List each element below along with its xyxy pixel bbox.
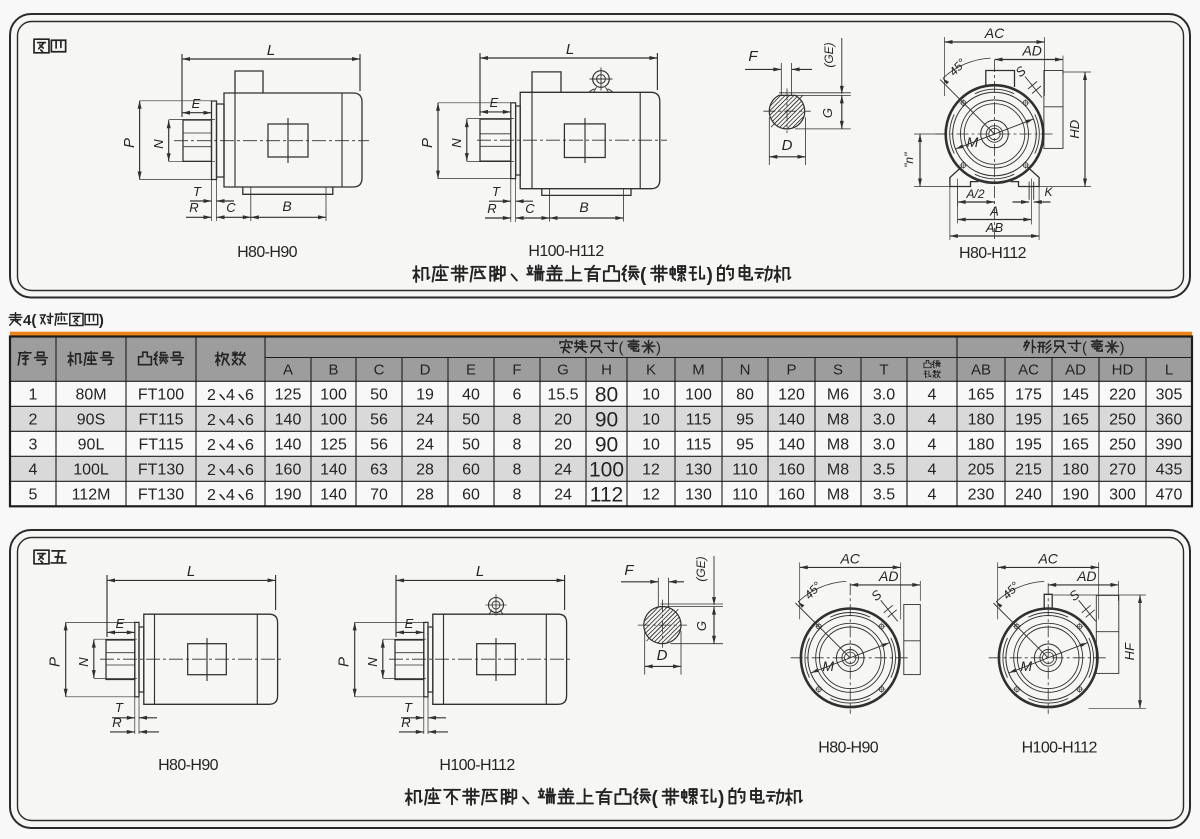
svg-text:D: D [420, 361, 431, 378]
svg-text:T: T [879, 361, 888, 378]
svg-text:M8: M8 [827, 437, 849, 454]
svg-text:(GE): (GE) [822, 42, 836, 67]
svg-text:50: 50 [370, 387, 388, 404]
svg-text:AB: AB [971, 361, 991, 378]
svg-text:E: E [405, 616, 414, 631]
svg-text:190: 190 [1062, 487, 1089, 504]
svg-text:C: C [374, 361, 385, 378]
svg-text:FT130: FT130 [138, 487, 184, 504]
svg-text:B: B [328, 361, 338, 378]
svg-text:4(: 4( [23, 312, 36, 329]
svg-text:AB: AB [985, 220, 1004, 235]
svg-text:180: 180 [968, 412, 995, 429]
svg-text:8: 8 [513, 412, 522, 429]
svg-text:"n": "n" [902, 152, 916, 168]
svg-text:140: 140 [275, 437, 302, 454]
svg-text:A/2: A/2 [965, 187, 984, 201]
svg-text:2: 2 [207, 437, 216, 454]
svg-text:4: 4 [226, 487, 235, 504]
svg-text:H100-H112: H100-H112 [1022, 739, 1098, 756]
svg-text:100: 100 [685, 387, 712, 404]
svg-text:(: ( [652, 788, 659, 809]
svg-text:125: 125 [320, 437, 347, 454]
svg-text:80: 80 [595, 383, 618, 406]
svg-text:G: G [694, 621, 709, 631]
svg-text:M: M [822, 658, 834, 674]
svg-text:AC: AC [839, 550, 860, 566]
svg-text:305: 305 [1156, 387, 1183, 404]
svg-text:D: D [657, 647, 668, 664]
svg-text:AD: AD [1065, 361, 1086, 378]
svg-text:60: 60 [462, 487, 480, 504]
svg-text:FT115: FT115 [138, 437, 183, 454]
svg-text:M8: M8 [827, 462, 849, 479]
svg-text:H80-H90: H80-H90 [818, 739, 879, 756]
svg-text:B: B [282, 198, 291, 214]
svg-text:AD: AD [1076, 568, 1096, 584]
svg-text:160: 160 [778, 462, 805, 479]
svg-text:G: G [557, 361, 569, 378]
svg-text:6: 6 [245, 387, 254, 404]
svg-text:10: 10 [642, 412, 660, 429]
svg-text:T: T [492, 184, 501, 199]
svg-text:8: 8 [513, 437, 522, 454]
svg-text:6: 6 [513, 387, 522, 404]
svg-text:3.5: 3.5 [873, 487, 895, 504]
svg-text:3.0: 3.0 [873, 437, 895, 454]
svg-text:N: N [449, 138, 464, 148]
svg-text:M: M [1020, 658, 1032, 674]
svg-text:M: M [692, 361, 705, 378]
svg-text:220: 220 [1109, 387, 1136, 404]
svg-text:H80-H90: H80-H90 [237, 244, 298, 261]
svg-text:24: 24 [416, 412, 434, 429]
svg-text:M8: M8 [827, 487, 849, 504]
svg-text:T: T [404, 700, 413, 715]
svg-text:230: 230 [968, 487, 995, 504]
svg-text:56: 56 [370, 437, 388, 454]
svg-text:2: 2 [207, 412, 216, 429]
svg-text:AC: AC [984, 25, 1005, 41]
svg-text:HD: HD [1067, 120, 1082, 139]
svg-text:390: 390 [1156, 437, 1183, 454]
svg-text:L: L [267, 42, 275, 59]
svg-text:P: P [47, 657, 64, 667]
svg-text:P: P [786, 361, 796, 378]
svg-text:K: K [1044, 185, 1053, 199]
svg-text:(: ( [1082, 339, 1087, 356]
svg-text:1: 1 [29, 387, 38, 404]
svg-text:4: 4 [226, 437, 235, 454]
svg-text:300: 300 [1109, 487, 1136, 504]
svg-text:2: 2 [207, 387, 216, 404]
svg-text:110: 110 [732, 462, 758, 479]
svg-text:80M: 80M [75, 387, 106, 404]
svg-text:130: 130 [685, 487, 712, 504]
svg-text:N: N [76, 657, 91, 667]
svg-text:125: 125 [275, 387, 302, 404]
svg-text:95: 95 [736, 437, 754, 454]
svg-text:50: 50 [462, 412, 480, 429]
svg-text:AC: AC [1018, 361, 1039, 378]
svg-text:(GE): (GE) [694, 556, 708, 581]
svg-text:115: 115 [686, 412, 712, 429]
svg-text:435: 435 [1156, 462, 1183, 479]
svg-text:19: 19 [416, 387, 434, 404]
svg-text:28: 28 [416, 462, 434, 479]
svg-text:24: 24 [416, 437, 434, 454]
svg-text:4: 4 [226, 387, 235, 404]
svg-text:115: 115 [686, 437, 712, 454]
svg-text:2: 2 [207, 462, 216, 479]
svg-text:140: 140 [778, 437, 805, 454]
svg-text:10: 10 [642, 437, 660, 454]
svg-text:90: 90 [595, 433, 618, 456]
svg-text:R: R [401, 715, 410, 730]
svg-text:100: 100 [320, 412, 347, 429]
svg-text:R: R [189, 200, 198, 215]
svg-text:N: N [365, 657, 380, 667]
svg-text:R: R [112, 715, 121, 730]
svg-text:N: N [740, 361, 751, 378]
svg-text:100: 100 [589, 458, 624, 481]
svg-text:140: 140 [320, 487, 347, 504]
svg-text:M8: M8 [827, 412, 849, 429]
svg-text:110: 110 [732, 487, 758, 504]
svg-text:4: 4 [928, 487, 937, 504]
svg-text:P: P [419, 138, 436, 148]
svg-text:P: P [121, 138, 138, 148]
svg-text:120: 120 [778, 387, 805, 404]
svg-text:2: 2 [29, 412, 38, 429]
svg-text:160: 160 [778, 487, 805, 504]
svg-text:3.0: 3.0 [873, 412, 895, 429]
svg-text:A: A [989, 204, 999, 219]
svg-text:63: 63 [370, 462, 388, 479]
svg-text:15.5: 15.5 [547, 387, 578, 404]
svg-text:130: 130 [685, 462, 712, 479]
svg-text:R: R [487, 201, 496, 216]
svg-text:145: 145 [1062, 387, 1089, 404]
svg-text:L: L [1165, 361, 1173, 378]
svg-text:H100-H112: H100-H112 [439, 757, 515, 774]
svg-text:112: 112 [590, 483, 623, 506]
svg-text:12: 12 [642, 462, 660, 479]
svg-text:50: 50 [462, 437, 480, 454]
svg-text:195: 195 [1015, 412, 1042, 429]
svg-text:470: 470 [1156, 487, 1183, 504]
svg-text:): ) [99, 312, 104, 329]
svg-text:HF: HF [1122, 642, 1137, 660]
svg-text:H80-H112: H80-H112 [959, 245, 1027, 262]
svg-text:195: 195 [1015, 437, 1042, 454]
svg-text:F: F [512, 361, 521, 378]
svg-text:215: 215 [1015, 462, 1042, 479]
svg-text:250: 250 [1109, 437, 1136, 454]
svg-text:190: 190 [275, 487, 302, 504]
svg-text:90: 90 [595, 408, 618, 431]
svg-text:4: 4 [226, 462, 235, 479]
svg-text:4: 4 [928, 462, 937, 479]
svg-text:F: F [624, 562, 634, 579]
svg-text:20: 20 [554, 412, 572, 429]
svg-text:5: 5 [29, 487, 38, 504]
svg-text:E: E [466, 361, 476, 378]
svg-text:112M: 112M [72, 487, 111, 504]
svg-text:AC: AC [1037, 550, 1058, 566]
svg-text:70: 70 [370, 487, 388, 504]
svg-text:8: 8 [513, 462, 522, 479]
svg-text:140: 140 [778, 412, 805, 429]
svg-text:20: 20 [554, 437, 572, 454]
svg-text:165: 165 [1062, 412, 1089, 429]
svg-text:3.5: 3.5 [873, 462, 895, 479]
svg-text:6: 6 [245, 437, 254, 454]
svg-text:180: 180 [968, 437, 995, 454]
svg-text:(: ( [619, 339, 624, 356]
svg-text:165: 165 [1062, 437, 1089, 454]
svg-text:90L: 90L [78, 437, 105, 454]
svg-text:4: 4 [226, 412, 235, 429]
svg-text:M6: M6 [827, 387, 849, 404]
svg-text:10: 10 [642, 387, 660, 404]
svg-text:140: 140 [275, 412, 302, 429]
svg-text:160: 160 [275, 462, 302, 479]
svg-text:S: S [833, 361, 843, 378]
svg-text:270: 270 [1109, 462, 1136, 479]
svg-text:L: L [566, 41, 574, 58]
svg-text:180: 180 [1062, 462, 1089, 479]
svg-text:205: 205 [968, 462, 995, 479]
svg-text:): ) [656, 339, 661, 356]
svg-text:): ) [1120, 339, 1125, 356]
svg-text:360: 360 [1156, 412, 1183, 429]
svg-text:P: P [336, 657, 353, 667]
svg-text:60: 60 [462, 462, 480, 479]
svg-text:175: 175 [1015, 387, 1042, 404]
svg-text:6: 6 [245, 412, 254, 429]
svg-text:250: 250 [1109, 412, 1136, 429]
svg-text:AD: AD [878, 568, 898, 584]
svg-text:100: 100 [320, 387, 347, 404]
svg-text:): ) [718, 788, 724, 809]
svg-text:D: D [782, 137, 793, 154]
svg-text:E: E [192, 96, 201, 111]
svg-text:H100-H112: H100-H112 [528, 243, 604, 260]
svg-text:H: H [601, 361, 612, 378]
svg-text:(: ( [640, 265, 647, 286]
svg-text:4: 4 [928, 387, 937, 404]
svg-text:28: 28 [416, 487, 434, 504]
svg-text:T: T [193, 184, 202, 199]
svg-text:24: 24 [554, 487, 572, 504]
svg-text:FT130: FT130 [138, 462, 184, 479]
svg-text:C: C [226, 200, 236, 215]
svg-text:FT115: FT115 [138, 412, 183, 429]
svg-text:HD: HD [1112, 361, 1134, 378]
svg-text:H80-H90: H80-H90 [158, 757, 219, 774]
svg-text:4: 4 [928, 412, 937, 429]
svg-text:A: A [283, 361, 293, 378]
svg-text:90S: 90S [77, 412, 105, 429]
svg-text:C: C [525, 201, 535, 216]
svg-text:M: M [967, 134, 979, 150]
svg-text:L: L [476, 563, 484, 580]
svg-text:165: 165 [968, 387, 995, 404]
svg-text:): ) [707, 265, 713, 286]
svg-text:240: 240 [1015, 487, 1042, 504]
svg-text:B: B [579, 199, 588, 215]
svg-text:N: N [151, 139, 166, 149]
svg-text:100L: 100L [73, 462, 109, 479]
svg-text:AD: AD [1021, 43, 1041, 59]
svg-text:FT100: FT100 [138, 387, 184, 404]
svg-text:6: 6 [245, 487, 254, 504]
svg-text:56: 56 [370, 412, 388, 429]
svg-text:12: 12 [642, 487, 660, 504]
svg-text:24: 24 [554, 462, 572, 479]
svg-text:40: 40 [462, 387, 480, 404]
svg-text:T: T [115, 700, 124, 715]
svg-text:E: E [116, 616, 125, 631]
svg-text:8: 8 [513, 487, 522, 504]
svg-text:80: 80 [736, 387, 754, 404]
svg-text:95: 95 [736, 412, 754, 429]
svg-text:3: 3 [29, 437, 38, 454]
svg-text:K: K [646, 361, 656, 378]
svg-text:2: 2 [207, 487, 216, 504]
svg-text:4: 4 [928, 437, 937, 454]
svg-text:4: 4 [29, 462, 38, 479]
svg-text:F: F [748, 48, 758, 65]
svg-text:6: 6 [245, 462, 254, 479]
svg-text:G: G [820, 108, 835, 118]
svg-text:3.0: 3.0 [873, 387, 895, 404]
svg-text:140: 140 [320, 462, 347, 479]
svg-text:L: L [187, 563, 195, 580]
